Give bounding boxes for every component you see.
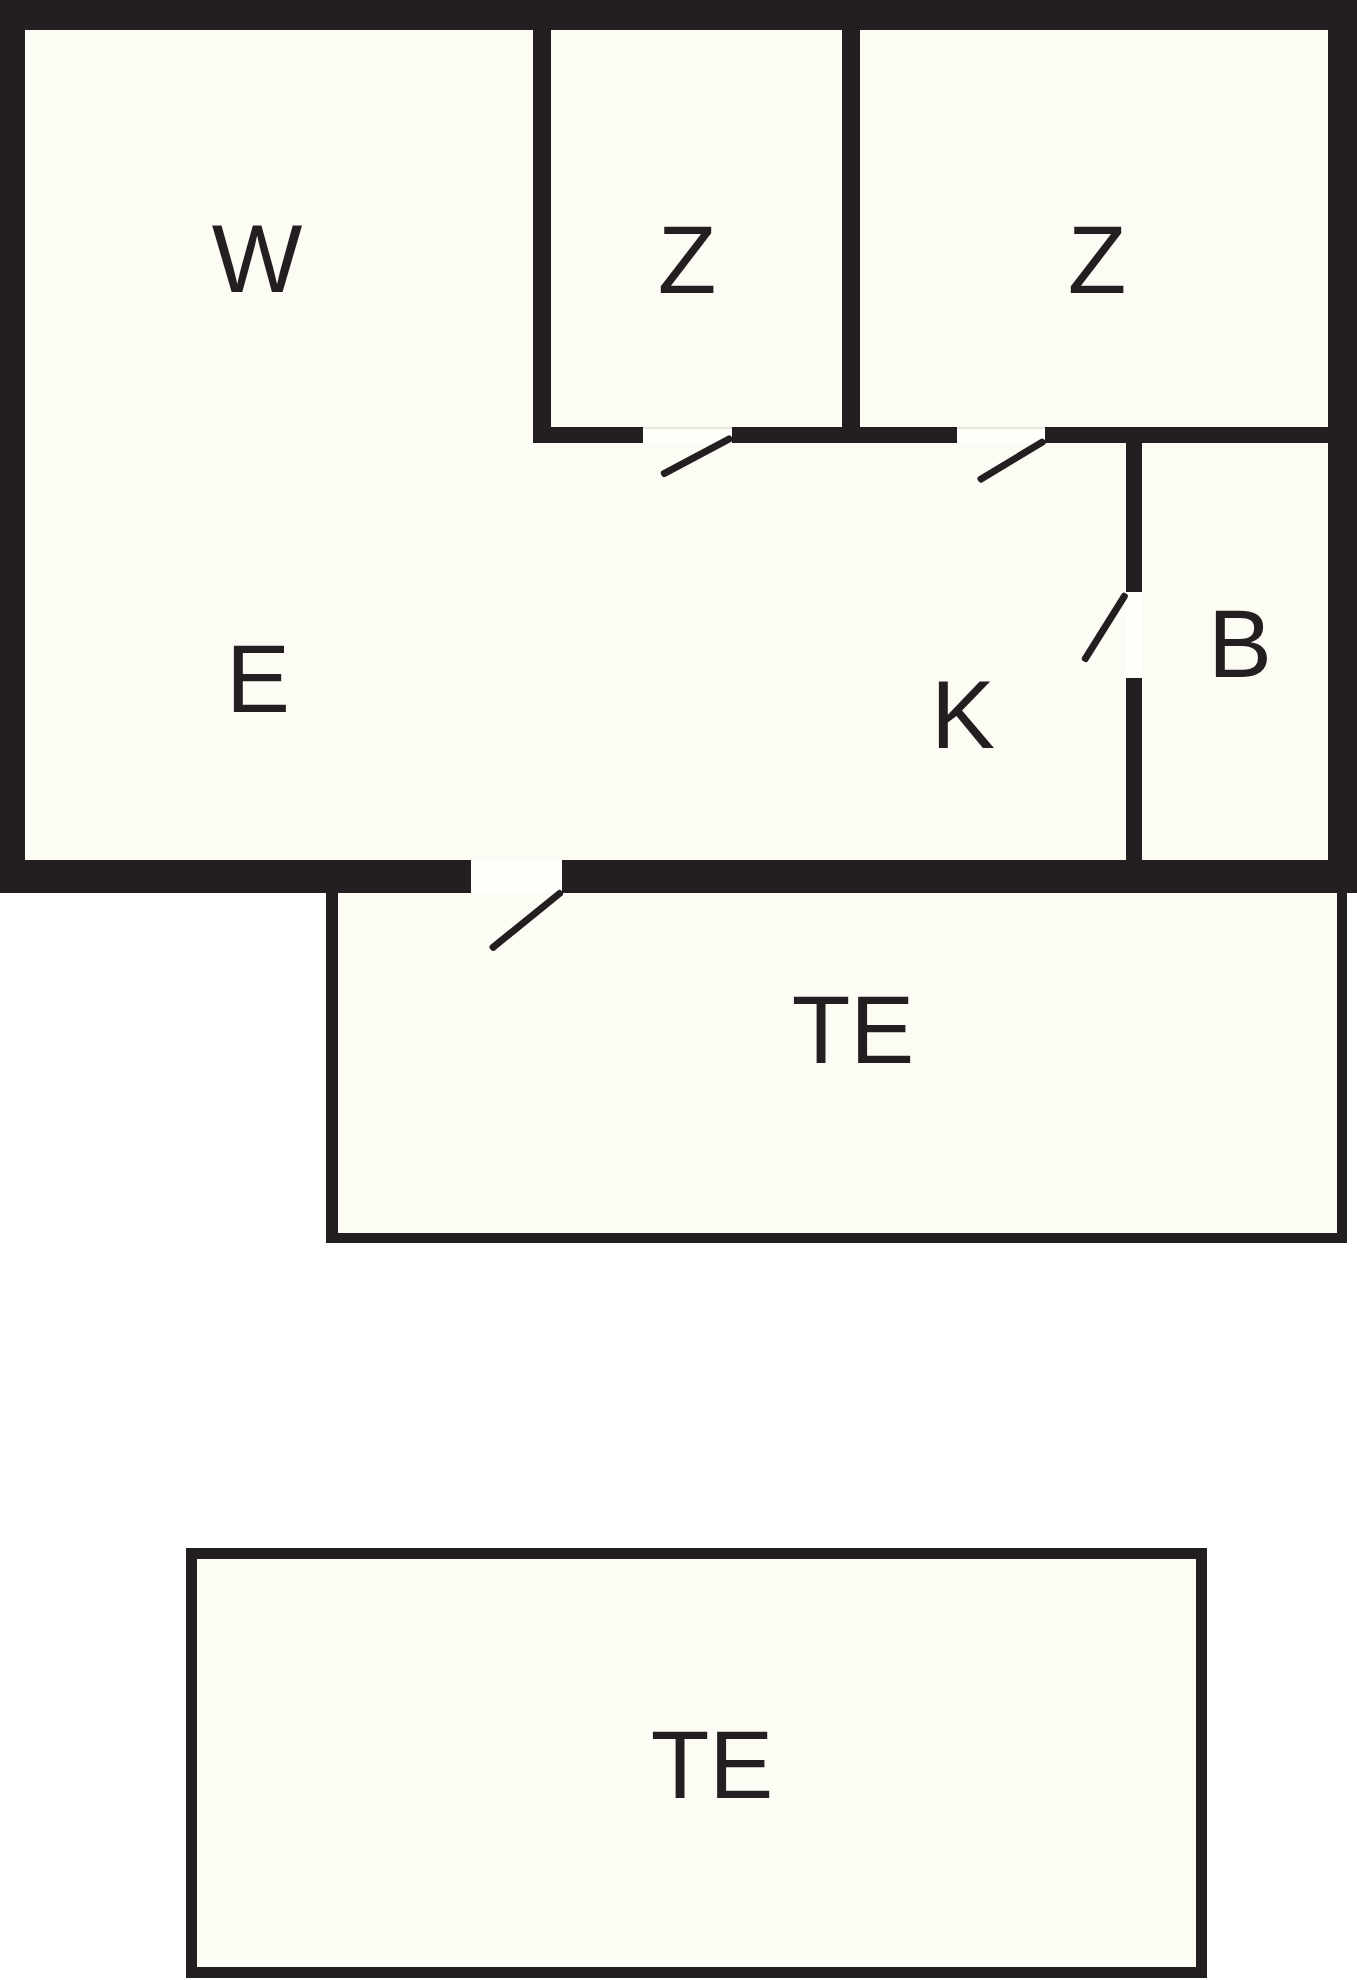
door-opening-z2 [957, 427, 1045, 443]
wall-below-z1-left [533, 427, 643, 443]
door-opening-terrace [471, 860, 562, 893]
wall-below-z2-right [1045, 427, 1328, 443]
outer-wall-left [0, 0, 25, 893]
room-label-e: E [226, 631, 290, 727]
room-label-z2: Z [1068, 212, 1127, 308]
room-label-z1: Z [658, 212, 717, 308]
outer-wall-top [0, 0, 1357, 30]
outer-wall-bottom-right [562, 860, 1357, 893]
floorplan-canvas: W Z Z E K B TE TE [0, 0, 1357, 1980]
terrace-label-upper: TE [792, 982, 915, 1078]
room-label-k: K [931, 667, 995, 763]
room-label-b: B [1208, 596, 1272, 692]
wall-k-b-lower [1126, 678, 1142, 860]
outer-wall-right [1328, 0, 1357, 893]
wall-w-z1 [533, 30, 551, 443]
wall-below-z-middle [732, 427, 957, 443]
room-label-w: W [212, 211, 303, 307]
main-building-floor [0, 0, 1357, 893]
outer-wall-bottom-left [0, 860, 471, 893]
wall-z1-z2 [842, 30, 860, 443]
wall-k-b-upper [1126, 427, 1142, 592]
door-opening-b [1126, 592, 1142, 678]
terrace-label-lower: TE [651, 1717, 774, 1813]
